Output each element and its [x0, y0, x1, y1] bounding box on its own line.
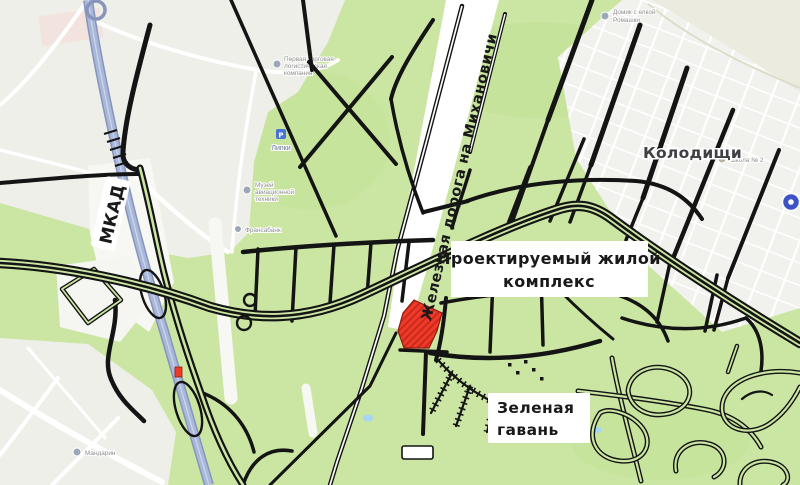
bank-poi-icon [235, 226, 242, 233]
transit-cluster-dot [788, 199, 794, 205]
white-plot-marker [402, 446, 433, 459]
cottage-poi-icon [601, 12, 609, 20]
complex-label-line1: Проектируемый жилой [437, 249, 661, 268]
poi-label: техники [255, 196, 278, 203]
harbor-label-line2: гавань [497, 421, 559, 439]
map-canvas: Первая торговая логистическая компания P… [0, 0, 800, 485]
harbor-label: Зеленая гавань [488, 393, 590, 443]
harbor-village-streets-segment [508, 363, 512, 367]
map-figure: Первая торговая логистическая компания P… [0, 0, 800, 485]
poi-label: Липки [271, 145, 290, 152]
complex-label-line2: комплекс [503, 272, 595, 291]
harbor-village-streets-segment [540, 377, 544, 381]
mandarin-poi-icon [73, 448, 81, 456]
poi-label: логистическая [284, 63, 328, 70]
logistics-poi-icon [273, 60, 281, 68]
poi-label: Музей [255, 181, 274, 189]
complex-label: Проектируемый жилой комплекс [437, 241, 661, 297]
harbor-village-streets-segment [532, 368, 536, 372]
poi-label: Франсабанк [245, 226, 281, 234]
poi-label: Мандарин [85, 450, 116, 457]
museum-poi-icon [243, 186, 251, 194]
harbor-village-streets-segment [524, 360, 528, 364]
harbor-village-streets-segment [516, 371, 520, 375]
poi-label: Ромашки [613, 17, 640, 24]
poi-label: авиационной [255, 188, 294, 196]
small-red-marker [175, 367, 182, 377]
kolodishchi-label: Колодищи [643, 144, 742, 162]
transit-icon-glyph: P [278, 132, 283, 140]
poi-label: компания [284, 70, 313, 77]
central-grid-streets-segment [400, 350, 447, 352]
harbor-label-line1: Зеленая [497, 399, 574, 417]
poi-label: Домик с елкой [613, 8, 656, 16]
pond [363, 415, 373, 422]
